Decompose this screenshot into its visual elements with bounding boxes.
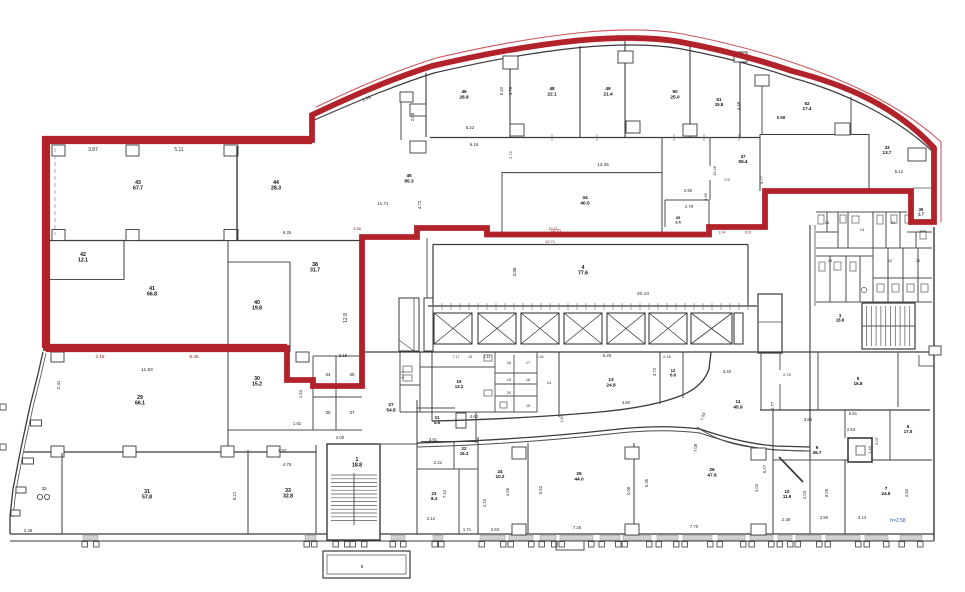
svg-text:5.22: 5.22 (466, 125, 475, 130)
svg-text:4.60: 4.60 (622, 400, 631, 405)
svg-text:4.72: 4.72 (417, 200, 422, 209)
svg-text:2.7: 2.7 (918, 212, 924, 217)
svg-text:18.8: 18.8 (836, 318, 845, 323)
svg-text:18: 18 (507, 361, 511, 365)
svg-text:2.63: 2.63 (491, 527, 500, 532)
svg-text:15: 15 (825, 221, 829, 225)
svg-text:10.71: 10.71 (549, 227, 558, 231)
svg-text:18.8: 18.8 (352, 463, 362, 469)
svg-text:4.77: 4.77 (759, 175, 764, 184)
svg-text:3.07: 3.07 (874, 436, 879, 445)
svg-text:12.1: 12.1 (78, 258, 88, 264)
svg-text:4.77: 4.77 (770, 401, 775, 410)
svg-text:19.8: 19.8 (252, 306, 262, 312)
svg-text:13: 13 (828, 259, 832, 263)
svg-text:4.16: 4.16 (482, 498, 487, 507)
svg-text:1.60: 1.60 (559, 414, 564, 423)
svg-text:16.3: 16.3 (460, 451, 469, 456)
svg-text:34: 34 (325, 372, 331, 377)
svg-text:3.99: 3.99 (703, 192, 708, 201)
svg-text:2.4: 2.4 (675, 220, 681, 225)
svg-text:2.18: 2.18 (96, 354, 105, 359)
svg-text:2.15: 2.15 (339, 353, 348, 358)
svg-text:2.72: 2.72 (508, 150, 513, 159)
svg-text:2.90: 2.90 (684, 188, 693, 193)
svg-text:3.72: 3.72 (652, 367, 657, 376)
svg-text:7.17: 7.17 (453, 355, 460, 359)
svg-text:3.00: 3.00 (336, 435, 345, 440)
svg-text:21.4: 21.4 (603, 91, 613, 97)
svg-text:8.4: 8.4 (431, 496, 438, 501)
svg-text:55.4: 55.4 (739, 159, 748, 164)
svg-text:47.8: 47.8 (707, 472, 717, 478)
svg-text:3.40: 3.40 (723, 369, 732, 374)
svg-text:3.97: 3.97 (278, 448, 287, 453)
svg-text:6.6: 6.6 (670, 373, 676, 378)
svg-text:5.11: 5.11 (174, 147, 184, 153)
svg-text:66.1: 66.1 (135, 401, 145, 407)
svg-text:13.2: 13.2 (455, 384, 464, 389)
svg-text:1.04: 1.04 (719, 231, 726, 235)
svg-text:54.8: 54.8 (386, 407, 396, 413)
svg-text:5.12: 5.12 (895, 169, 904, 174)
svg-text:5.40: 5.40 (499, 86, 504, 95)
svg-text:11.9: 11.9 (783, 494, 792, 499)
svg-text:1.92: 1.92 (293, 421, 302, 426)
svg-text:1.71: 1.71 (463, 527, 472, 532)
svg-text:5.88: 5.88 (777, 115, 786, 120)
svg-text:36.7: 36.7 (813, 450, 822, 455)
svg-text:25.0: 25.0 (670, 94, 680, 100)
svg-text:3.58: 3.58 (353, 226, 362, 231)
svg-text:5.21: 5.21 (232, 491, 237, 500)
svg-text:6.35: 6.35 (283, 230, 292, 235)
svg-text:17.4: 17.4 (803, 106, 812, 111)
svg-text:25: 25 (916, 259, 920, 263)
svg-text:10.2: 10.2 (496, 474, 505, 479)
svg-text:12.8: 12.8 (343, 313, 349, 323)
svg-text:4.56: 4.56 (505, 487, 510, 496)
svg-text:49: 49 (605, 86, 611, 92)
svg-text:26: 26 (709, 467, 715, 473)
svg-text:66.8: 66.8 (147, 292, 157, 298)
svg-text:32: 32 (41, 486, 47, 491)
svg-text:12.71: 12.71 (545, 239, 556, 244)
svg-text:24.8: 24.8 (882, 491, 891, 496)
svg-text:67.7: 67.7 (133, 186, 143, 192)
svg-text:2.5: 2.5 (724, 178, 729, 182)
svg-text:50: 50 (672, 89, 678, 95)
svg-text:7.70: 7.70 (690, 524, 699, 529)
svg-text:2.38: 2.38 (782, 517, 791, 522)
svg-text:13.7: 13.7 (883, 150, 892, 155)
svg-text:2.48: 2.48 (24, 528, 33, 533)
svg-text:57.8: 57.8 (142, 495, 152, 501)
svg-text:11.71: 11.71 (377, 201, 389, 206)
svg-text:4.60: 4.60 (470, 414, 479, 419)
svg-text:2.16: 2.16 (537, 355, 544, 359)
svg-text:77.6: 77.6 (578, 271, 588, 277)
svg-text:1.43: 1.43 (867, 445, 872, 454)
svg-text:2.64: 2.64 (847, 427, 856, 432)
svg-text:2.79: 2.79 (685, 204, 694, 209)
svg-text:2.76: 2.76 (783, 372, 792, 377)
svg-text:8: 8 (361, 564, 364, 569)
svg-text:3.86: 3.86 (512, 267, 517, 276)
svg-text:3.14: 3.14 (858, 515, 867, 520)
svg-text:20: 20 (507, 391, 511, 395)
svg-text:3.79: 3.79 (508, 86, 513, 95)
svg-text:36: 36 (325, 410, 331, 415)
svg-text:4.84: 4.84 (904, 488, 909, 497)
svg-text:31.7: 31.7 (310, 268, 320, 274)
svg-text:11: 11 (735, 399, 740, 405)
svg-text:37: 37 (349, 410, 355, 415)
svg-text:35: 35 (349, 372, 355, 377)
svg-text:11.83: 11.83 (141, 367, 153, 373)
svg-text:13: 13 (608, 377, 614, 383)
svg-text:5.47: 5.47 (762, 464, 767, 473)
svg-text:3.87: 3.87 (88, 147, 98, 153)
svg-text:2.16: 2.16 (663, 354, 672, 359)
svg-text:32.8: 32.8 (283, 494, 293, 500)
svg-text:5.51: 5.51 (849, 411, 858, 416)
svg-text:7.08: 7.08 (693, 443, 698, 452)
svg-text:27: 27 (388, 402, 394, 408)
svg-text:22.1: 22.1 (547, 91, 557, 97)
svg-text:17.5: 17.5 (904, 429, 913, 434)
svg-text:4.48: 4.48 (736, 101, 741, 110)
svg-text:8.10: 8.10 (745, 231, 752, 235)
svg-text:6.26: 6.26 (603, 353, 612, 358)
svg-text:2.08: 2.08 (410, 112, 415, 121)
svg-text:44.0: 44.0 (574, 476, 584, 482)
svg-text:4.78: 4.78 (283, 462, 292, 467)
svg-text:1.44: 1.44 (484, 355, 491, 359)
svg-text:2.41: 2.41 (56, 380, 61, 389)
svg-text:15: 15 (526, 404, 530, 408)
svg-text:25: 25 (576, 471, 582, 477)
svg-text:3.72: 3.72 (400, 370, 405, 379)
svg-text:3.86: 3.86 (804, 417, 813, 422)
svg-text:10.26: 10.26 (712, 165, 717, 176)
svg-text:15: 15 (468, 355, 472, 359)
svg-text:85.3: 85.3 (404, 178, 414, 184)
svg-text:1.54: 1.54 (298, 389, 303, 398)
svg-text:2.21: 2.21 (434, 460, 443, 465)
svg-text:5.46: 5.46 (190, 354, 199, 359)
svg-text:6.52: 6.52 (538, 485, 543, 494)
svg-text:3.91: 3.91 (429, 437, 438, 442)
svg-text:6.36: 6.36 (644, 478, 649, 487)
svg-text:45: 45 (406, 173, 412, 179)
svg-text:2.12: 2.12 (427, 516, 436, 521)
svg-text:2.55: 2.55 (820, 515, 829, 520)
svg-text:16.8: 16.8 (854, 381, 863, 386)
svg-text:45.9: 45.9 (733, 404, 743, 410)
svg-text:h=2.58: h=2.58 (890, 518, 906, 524)
svg-text:7.44: 7.44 (442, 489, 447, 498)
svg-text:6.18: 6.18 (470, 142, 479, 147)
svg-text:8.05: 8.05 (824, 488, 829, 497)
svg-text:34: 34 (582, 195, 588, 201)
svg-text:14: 14 (860, 228, 864, 232)
svg-text:15.2: 15.2 (252, 382, 262, 388)
svg-text:4.03: 4.03 (802, 490, 807, 499)
svg-text:24.8: 24.8 (606, 382, 616, 388)
svg-text:48: 48 (549, 86, 555, 92)
svg-text:20.10: 20.10 (637, 291, 649, 297)
svg-text:13.35: 13.35 (597, 162, 609, 167)
svg-text:16: 16 (526, 378, 530, 382)
svg-text:46: 46 (461, 89, 467, 95)
svg-text:15.8: 15.8 (715, 102, 724, 107)
svg-text:40.5: 40.5 (580, 200, 590, 206)
svg-text:4.04: 4.04 (754, 483, 759, 492)
svg-text:28.3: 28.3 (271, 186, 281, 192)
svg-text:7.25: 7.25 (573, 525, 582, 530)
svg-text:4.08: 4.08 (626, 486, 631, 495)
svg-text:19: 19 (507, 378, 511, 382)
svg-text:28.8: 28.8 (459, 94, 469, 100)
svg-text:12: 12 (888, 259, 892, 263)
svg-text:24: 24 (891, 221, 895, 225)
svg-text:14: 14 (547, 381, 551, 385)
svg-text:17: 17 (526, 361, 530, 365)
